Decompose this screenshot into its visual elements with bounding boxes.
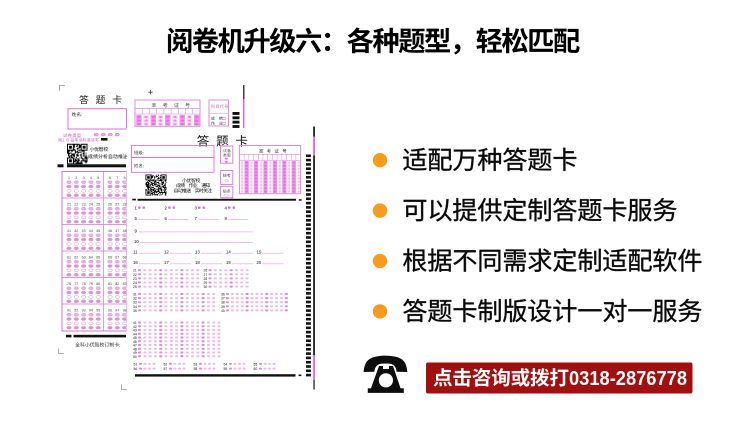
svg-text:13: 13 <box>195 250 200 255</box>
svg-text:14: 14 <box>226 250 231 255</box>
svg-text:6: 6 <box>109 176 111 180</box>
svg-text:20: 20 <box>257 260 262 265</box>
svg-text:76: 76 <box>67 282 71 286</box>
svg-text:15: 15 <box>257 250 262 255</box>
svg-text:8: 8 <box>124 176 126 180</box>
svg-text:2: 2 <box>75 176 77 180</box>
svg-text:42: 42 <box>74 229 78 233</box>
svg-text:50: 50 <box>133 355 137 359</box>
svg-text:24: 24 <box>89 203 93 207</box>
svg-text:93: 93 <box>82 309 86 313</box>
svg-text:43: 43 <box>82 229 86 233</box>
svg-text:92: 92 <box>74 309 78 313</box>
svg-text:51: 51 <box>134 362 138 366</box>
svg-text:17: 17 <box>164 260 169 265</box>
svg-text:63: 63 <box>82 256 86 260</box>
svg-text:91: 91 <box>67 309 71 313</box>
svg-text:98: 98 <box>123 309 127 313</box>
svg-text:40: 40 <box>221 309 225 313</box>
svg-text:97: 97 <box>115 309 119 313</box>
svg-text:57: 57 <box>164 367 168 371</box>
svg-text:27: 27 <box>115 203 119 207</box>
svg-text:65: 65 <box>96 256 100 260</box>
svg-text:11: 11 <box>133 250 138 255</box>
svg-text:10: 10 <box>134 239 139 244</box>
svg-text:60: 60 <box>254 367 258 371</box>
svg-text:66: 66 <box>108 256 112 260</box>
svg-text:48: 48 <box>123 229 127 233</box>
svg-text:62: 62 <box>74 256 78 260</box>
svg-text:77: 77 <box>74 282 78 286</box>
svg-text:52: 52 <box>164 362 168 366</box>
svg-text:5: 5 <box>97 176 99 180</box>
svg-text:19: 19 <box>226 260 231 265</box>
svg-text:28: 28 <box>123 203 127 207</box>
svg-text:79: 79 <box>89 282 93 286</box>
svg-text:94: 94 <box>89 309 93 313</box>
svg-text:25: 25 <box>133 285 137 289</box>
svg-text:53: 53 <box>194 362 198 366</box>
svg-text:81: 81 <box>108 282 112 286</box>
svg-text:18: 18 <box>195 260 200 265</box>
svg-text:16: 16 <box>133 260 138 265</box>
svg-text:68: 68 <box>123 256 127 260</box>
svg-text:96: 96 <box>108 309 112 313</box>
svg-text:82: 82 <box>115 282 119 286</box>
svg-text:56: 56 <box>134 367 138 371</box>
svg-text:67: 67 <box>115 256 119 260</box>
svg-text:78: 78 <box>82 282 86 286</box>
svg-text:25: 25 <box>96 203 100 207</box>
svg-text:41: 41 <box>67 229 71 233</box>
svg-text:59: 59 <box>224 367 228 371</box>
svg-text:58: 58 <box>194 367 198 371</box>
svg-text:54: 54 <box>224 362 228 366</box>
svg-text:35: 35 <box>133 309 137 313</box>
svg-text:26: 26 <box>108 203 112 207</box>
svg-text:7: 7 <box>116 176 118 180</box>
svg-text:22: 22 <box>74 203 78 207</box>
svg-text:46: 46 <box>108 229 112 233</box>
svg-text:30: 30 <box>204 285 208 289</box>
svg-text:95: 95 <box>96 309 100 313</box>
svg-text:1: 1 <box>68 176 70 180</box>
svg-text:45: 45 <box>96 229 100 233</box>
svg-text:23: 23 <box>82 203 86 207</box>
svg-text:0318-2876778: 0318-2876778 <box>569 368 687 390</box>
svg-text:55: 55 <box>254 362 258 366</box>
svg-text:61: 61 <box>67 256 71 260</box>
svg-text:80: 80 <box>96 282 100 286</box>
svg-text:83: 83 <box>123 282 127 286</box>
svg-text:44: 44 <box>89 229 93 233</box>
svg-text:3: 3 <box>83 176 85 180</box>
svg-text:12: 12 <box>164 250 169 255</box>
svg-text:64: 64 <box>89 256 93 260</box>
svg-text:4: 4 <box>90 176 92 180</box>
svg-text:21: 21 <box>67 203 71 207</box>
svg-text:47: 47 <box>115 229 119 233</box>
